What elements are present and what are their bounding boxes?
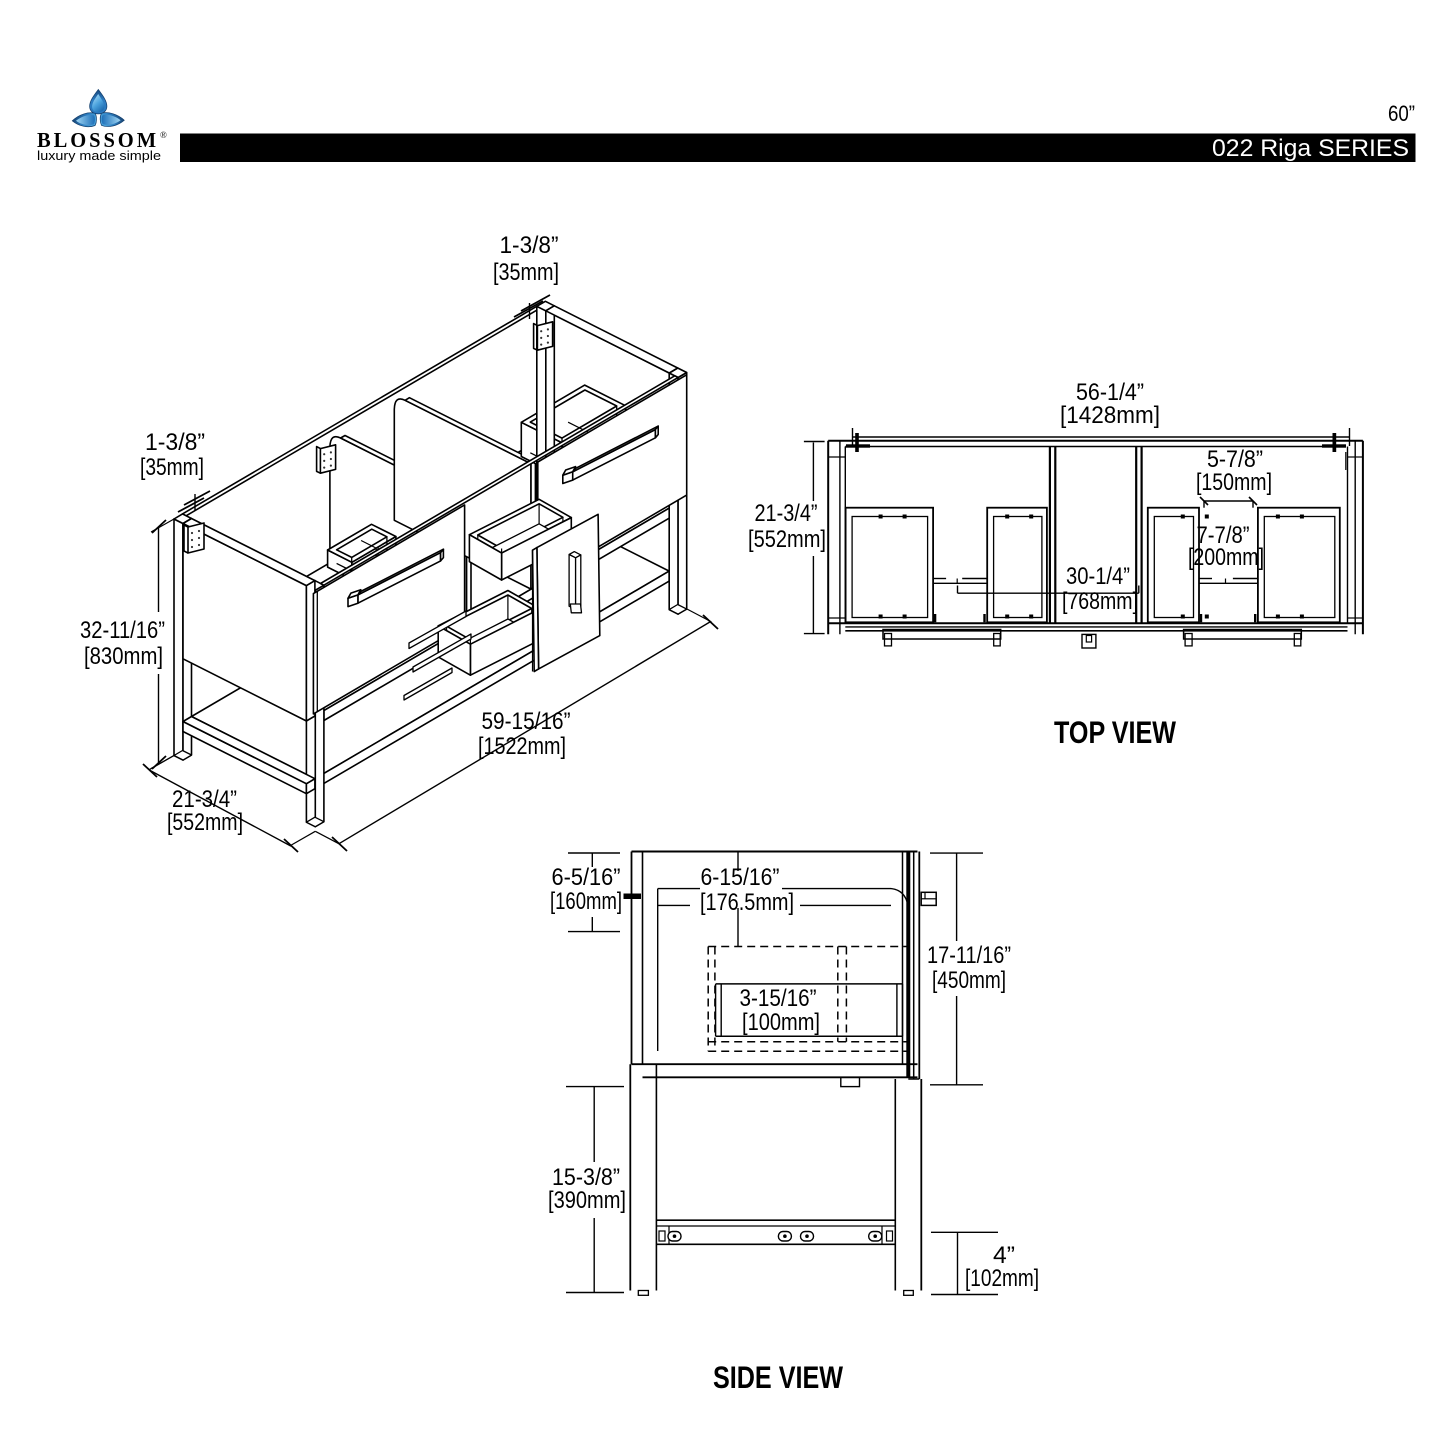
svg-text:[150mm]: [150mm] [1196,469,1272,496]
svg-text:6-15/16”: 6-15/16” [701,864,780,891]
svg-text:®: ® [160,130,167,140]
svg-text:3-15/16”: 3-15/16” [740,985,817,1012]
svg-text:[768mm]: [768mm] [1062,588,1138,615]
svg-text:1-3/8”: 1-3/8” [145,429,205,456]
svg-text:[1522mm]: [1522mm] [478,733,566,760]
svg-text:[102mm]: [102mm] [965,1265,1039,1292]
svg-text:SIDE VIEW: SIDE VIEW [713,1359,843,1395]
svg-text:[450mm]: [450mm] [932,967,1006,994]
svg-text:30-1/4”: 30-1/4” [1066,563,1130,590]
svg-text:60”: 60” [1388,101,1415,126]
svg-text:[1428mm]: [1428mm] [1060,402,1160,429]
svg-text:59-15/16”: 59-15/16” [482,708,571,735]
svg-text:[176.5mm]: [176.5mm] [700,889,794,916]
svg-text:022 Riga SERIES: 022 Riga SERIES [1212,135,1409,162]
svg-text:[100mm]: [100mm] [742,1009,820,1036]
svg-text:[390mm]: [390mm] [548,1187,626,1214]
svg-text:[552mm]: [552mm] [167,809,243,836]
svg-text:[160mm]: [160mm] [550,888,622,915]
svg-text:[552mm]: [552mm] [748,526,826,553]
svg-text:1-3/8”: 1-3/8” [500,232,559,259]
svg-text:[35mm]: [35mm] [140,454,204,481]
svg-text:luxury made simple: luxury made simple [37,148,161,163]
svg-text:21-3/4”: 21-3/4” [755,500,818,527]
svg-text:TOP VIEW: TOP VIEW [1054,714,1176,750]
svg-text:[830mm]: [830mm] [84,643,163,670]
svg-text:6-5/16”: 6-5/16” [552,864,621,891]
svg-text:[35mm]: [35mm] [493,259,559,286]
svg-text:32-11/16”: 32-11/16” [80,617,165,644]
svg-text:[200mm]: [200mm] [1188,544,1264,571]
svg-text:17-11/16”: 17-11/16” [927,942,1011,969]
